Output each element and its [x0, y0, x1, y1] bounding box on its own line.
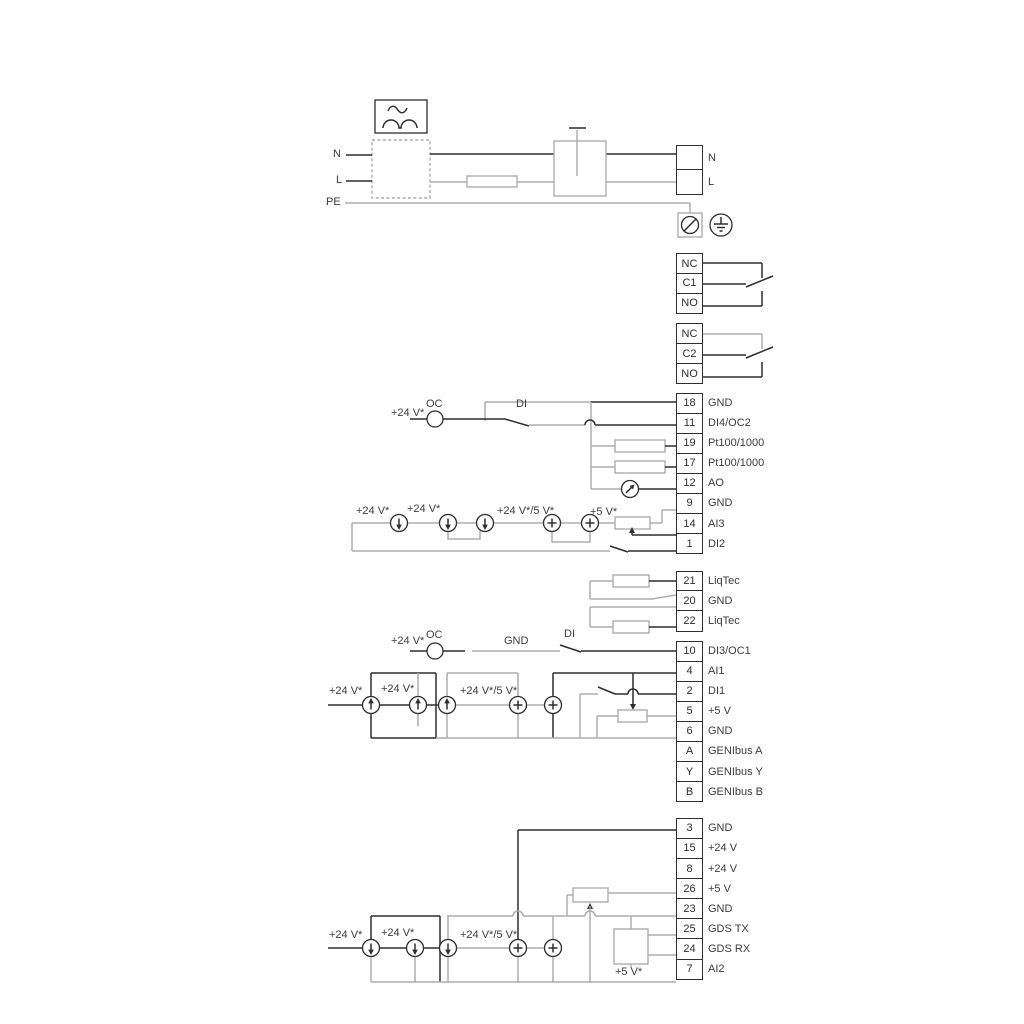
terminal-cell-a: AGENIbus A: [676, 741, 703, 762]
terminal-number: 2: [686, 685, 692, 697]
plus24v-label: +24 V*: [329, 685, 362, 697]
potentiometer-icon: [615, 517, 650, 529]
terminal-number: 8: [686, 863, 692, 875]
terminal-cell-c2: C2: [676, 343, 703, 364]
terminal-label: DI3/OC1: [708, 645, 751, 657]
terminal-number: 20: [683, 595, 695, 607]
terminal-label: GENIbus Y: [708, 766, 763, 778]
plus24v-5v-label: +24 V*/5 V*: [497, 505, 554, 517]
current-source-plus-icon: [544, 515, 561, 532]
dashed-module-box: [372, 140, 430, 198]
current-source-plus-icon: [545, 697, 562, 714]
relay2-terminal-block: NCC2NO: [676, 323, 703, 384]
di-label: DI: [564, 628, 575, 640]
terminal-cell-b: BGENIbus B: [676, 781, 703, 802]
terminal-cell-2: 2DI1: [676, 681, 703, 702]
terminal-number: NC: [682, 258, 698, 270]
plus24v-label: +24 V*: [391, 635, 424, 647]
terminal-cell-6: 6GND: [676, 721, 703, 742]
terminal-number: C1: [682, 277, 696, 289]
terminal-label: GENIbus A: [708, 745, 762, 757]
current-source-up-icon: [363, 697, 380, 714]
terminal-label: N: [708, 152, 716, 164]
di-switch-blade: [505, 419, 529, 426]
terminal-label: Pt100/1000: [708, 457, 764, 469]
plus24v-5v-label: +24 V*/5 V*: [460, 929, 517, 941]
terminal-number: 4: [686, 665, 692, 677]
open-collector-icon: [427, 411, 443, 427]
terminal-number: 22: [683, 615, 695, 627]
terminal-cell-23: 23GND: [676, 898, 703, 920]
terminal-cell-nc: NC: [676, 323, 703, 344]
terminal-label: GND: [708, 903, 732, 915]
terminal-cell-22: 22LiqTec: [676, 610, 703, 631]
relay1-terminal-block: NCC1NO: [676, 253, 703, 314]
bottom-circuit: [328, 830, 676, 982]
terminal-number: 23: [683, 903, 695, 915]
current-source-plus-icon: [510, 697, 527, 714]
terminal-number: B: [686, 786, 693, 798]
current-source-down-icon: [407, 940, 424, 957]
terminal-label: LiqTec: [708, 615, 740, 627]
current-source-down-icon: [363, 940, 380, 957]
terminal-cell-no: NO: [676, 363, 703, 384]
analog-meter-icon: [622, 481, 639, 498]
terminal-cell-21: 21LiqTec: [676, 571, 703, 592]
pe-conductor-label: PE: [326, 196, 341, 208]
terminal-number: 17: [683, 457, 695, 469]
liqtec-sensor-icon: [613, 575, 649, 587]
current-source-up-icon: [410, 697, 427, 714]
terminal-cell-3: 3GND: [676, 818, 703, 840]
terminal-label: +24 V: [708, 863, 737, 875]
terminal-cell-5: 5+5 V: [676, 701, 703, 722]
terminal-label: GENIbus B: [708, 786, 763, 798]
terminal-cell-7: 7AI2: [676, 959, 703, 981]
current-source-down-icon: [440, 940, 457, 957]
terminal-cell-10: 10DI3/OC1: [676, 641, 703, 662]
terminal-number: 19: [683, 437, 695, 449]
plus24v-label: +24 V*: [356, 505, 389, 517]
terminal-cell-18: 18GND: [676, 393, 703, 414]
terminal-label: AO: [708, 477, 724, 489]
terminal-label: AI3: [708, 518, 725, 530]
open-collector-icon: [427, 643, 443, 659]
gnd-label: GND: [504, 635, 528, 647]
oc-label: OC: [426, 398, 443, 410]
terminal-number: NO: [681, 297, 698, 309]
current-source-up-icon: [439, 697, 456, 714]
terminal-cell-14: 14AI3: [676, 513, 703, 534]
terminal-label: DI1: [708, 685, 725, 697]
earth-ground-icon: [710, 214, 732, 236]
terminal-label: GND: [708, 497, 732, 509]
terminal-number: 14: [683, 518, 695, 530]
terminal-cell-n: N: [676, 145, 703, 171]
terminal-cell-12: 12AO: [676, 473, 703, 494]
mains-switch-icon: [554, 141, 606, 196]
terminal-number: 25: [683, 923, 695, 935]
pe-conductor: [345, 203, 690, 213]
terminal-label: +24 V: [708, 842, 737, 854]
mains-section: [345, 100, 690, 213]
di2-switch-blade: [610, 546, 628, 552]
terminal-cell-19: 19Pt100/1000: [676, 433, 703, 454]
current-source-down-icon: [477, 515, 494, 532]
terminal-label: GND: [708, 725, 732, 737]
wire-hop: [585, 420, 595, 425]
terminal-label: GDS TX: [708, 923, 749, 935]
terminal-cell-l: L: [676, 169, 703, 195]
liqtec-terminal-strip: 21LiqTec20GND22LiqTec: [676, 571, 703, 632]
power-terminal-block: NL: [676, 145, 703, 195]
terminal-number: 15: [683, 842, 695, 854]
terminal-number: 26: [683, 883, 695, 895]
io-terminal-strip-c: 3GND15+24 V8+24 V26+5 V23GND25GDS TX24GD…: [676, 818, 703, 981]
terminal-cell-y: YGENIbus Y: [676, 761, 703, 782]
terminal-number: 21: [683, 575, 695, 587]
terminal-cell-20: 20GND: [676, 590, 703, 611]
terminal-label: DI4/OC2: [708, 417, 751, 429]
terminal-number: 24: [683, 943, 695, 955]
current-source-plus-icon: [545, 940, 562, 957]
current-source-down-icon: [440, 515, 457, 532]
terminal-cell-25: 25GDS TX: [676, 918, 703, 940]
terminal-label: L: [708, 176, 714, 188]
terminal-number: 18: [683, 397, 695, 409]
current-source-down-icon: [391, 515, 408, 532]
di3-oc1-circuit: [410, 643, 676, 659]
terminal-label: +5 V: [708, 705, 731, 717]
relay2-contact: [703, 334, 773, 377]
plus24v-5v-label: +24 V*/5 V*: [460, 685, 517, 697]
oc-label: OC: [426, 629, 443, 641]
terminal-cell-9: 9GND: [676, 493, 703, 514]
terminal-cell-nc: NC: [676, 253, 703, 274]
terminal-number: 3: [686, 822, 692, 834]
terminal-number: 11: [684, 417, 695, 429]
pe-terminal-icon: [678, 213, 702, 237]
terminal-number: 7: [686, 963, 692, 975]
gds-sensor-icon: [614, 929, 648, 964]
terminal-cell-1: 1DI2: [676, 533, 703, 554]
terminal-label: Pt100/1000: [708, 437, 764, 449]
terminal-label: GND: [708, 822, 732, 834]
wiring-diagram: NL NCC1NO NCC2NO 18GND11DI4/OC219Pt100/1…: [0, 0, 1024, 1024]
plus24v-label: +24 V*: [381, 927, 414, 939]
terminal-cell-15: 15+24 V: [676, 838, 703, 860]
terminal-cell-11: 11DI4/OC2: [676, 413, 703, 434]
terminal-number: NC: [682, 328, 698, 340]
terminal-cell-24: 24GDS RX: [676, 938, 703, 960]
plus24v-label: +24 V*: [407, 503, 440, 515]
terminal-cell-4: 4AI1: [676, 661, 703, 682]
terminal-label: GDS RX: [708, 943, 750, 955]
io-terminal-strip-b: 10DI3/OC14AI12DI15+5 V6GNDAGENIbus AYGEN…: [676, 641, 703, 803]
terminal-number: 12: [683, 477, 695, 489]
pt100-resistor-icon: [615, 440, 665, 452]
terminal-number: A: [686, 745, 693, 757]
plus24v-label: +24 V*: [329, 929, 362, 941]
terminal-cell-26: 26+5 V: [676, 878, 703, 900]
terminal-cell-c1: C1: [676, 273, 703, 294]
terminal-number: Y: [686, 766, 693, 778]
terminal-number: NO: [681, 368, 698, 380]
l-conductor-label: L: [336, 174, 342, 186]
plus5v-label: +5 V*: [590, 506, 617, 518]
pt100-resistor-icon: [615, 461, 665, 473]
terminal-label: DI2: [708, 538, 725, 550]
wiper-arrow: [630, 704, 636, 710]
liqtec-circuit: [590, 575, 676, 633]
terminal-label: GND: [708, 595, 732, 607]
relay1-contact: [703, 263, 773, 306]
di4-oc2-circuit: [410, 402, 676, 498]
terminal-cell-no: NO: [676, 293, 703, 314]
potentiometer-icon: [618, 710, 647, 722]
relay2-blade: [746, 347, 773, 358]
relay1-blade: [746, 276, 773, 287]
plus24v-label: +24 V*: [381, 683, 414, 695]
n-conductor-label: N: [333, 148, 341, 160]
terminal-number: 5: [686, 705, 692, 717]
potentiometer-icon: [573, 888, 608, 902]
current-source-plus-icon: [510, 940, 527, 957]
terminal-number: 10: [683, 645, 695, 657]
di-label: DI: [516, 398, 527, 410]
terminal-label: AI1: [708, 665, 725, 677]
fuse-icon: [467, 176, 517, 187]
terminal-number: 1: [686, 538, 692, 550]
terminal-label: AI2: [708, 963, 725, 975]
di1-switch-blade: [598, 687, 615, 694]
plus5v-label: +5 V*: [615, 966, 642, 978]
liqtec-sensor-icon: [613, 621, 649, 633]
terminal-label: GND: [708, 397, 732, 409]
terminal-number: C2: [682, 348, 696, 360]
terminal-number: 9: [686, 497, 692, 509]
terminal-cell-17: 17Pt100/1000: [676, 453, 703, 474]
terminal-label: LiqTec: [708, 575, 740, 587]
io-terminal-strip-a: 18GND11DI4/OC219Pt100/100017Pt100/100012…: [676, 393, 703, 555]
terminal-label: +5 V: [708, 883, 731, 895]
plus24v-label: +24 V*: [391, 407, 424, 419]
di3-switch-blade: [560, 645, 581, 652]
terminal-number: 6: [686, 725, 692, 737]
terminal-cell-8: 8+24 V: [676, 858, 703, 880]
